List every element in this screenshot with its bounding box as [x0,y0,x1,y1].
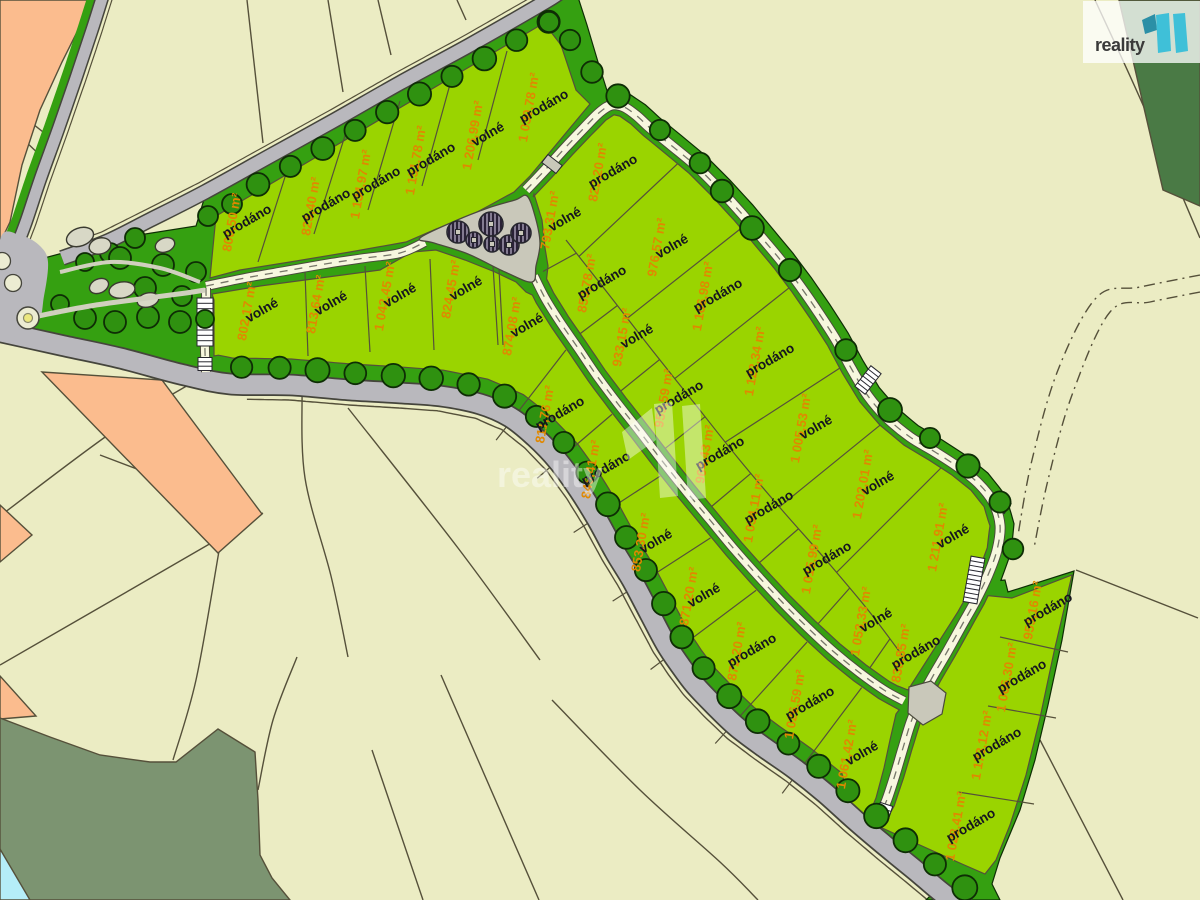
svg-text:reality: reality [1095,35,1145,55]
svg-text:reality: reality [497,454,603,495]
